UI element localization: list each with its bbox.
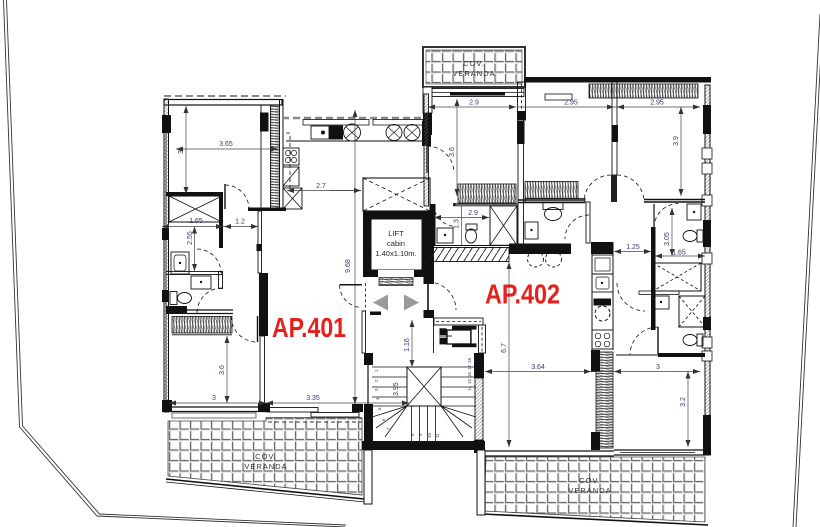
svg-text:3: 3 (212, 395, 216, 402)
svg-text:3.05: 3.05 (664, 232, 671, 246)
svg-text:AP.401: AP.401 (272, 312, 346, 343)
svg-text:LIFT: LIFT (388, 229, 404, 238)
svg-text:cabin: cabin (387, 239, 405, 248)
svg-text:10: 10 (427, 432, 432, 438)
svg-text:2.9: 2.9 (468, 210, 478, 217)
svg-text:3.6: 3.6 (449, 147, 456, 157)
svg-text:1.3: 1.3 (454, 219, 461, 229)
svg-text:COV.: COV. (579, 476, 601, 485)
svg-text:1.65: 1.65 (672, 250, 686, 257)
svg-text:AP.402: AP.402 (485, 279, 560, 310)
svg-text:3.6: 3.6 (219, 365, 226, 375)
svg-text:3: 3 (656, 364, 660, 371)
svg-text:9.68: 9.68 (345, 259, 352, 273)
svg-text:2.95: 2.95 (564, 100, 578, 107)
svg-text:16: 16 (467, 371, 472, 377)
svg-text:3.65: 3.65 (219, 141, 233, 148)
svg-text:2.95: 2.95 (650, 100, 664, 107)
svg-text:2.7: 2.7 (316, 183, 326, 190)
svg-text:2.9: 2.9 (469, 100, 479, 107)
svg-text:VERANDA: VERANDA (244, 462, 287, 471)
svg-text:6.7: 6.7 (501, 343, 508, 353)
svg-text:1.25: 1.25 (626, 244, 640, 251)
svg-text:VERANDA: VERANDA (452, 69, 495, 78)
svg-text:17: 17 (467, 364, 472, 370)
svg-text:14: 14 (467, 385, 472, 391)
svg-text:1.2: 1.2 (235, 219, 245, 226)
svg-text:3.35: 3.35 (306, 395, 320, 402)
svg-text:18: 18 (467, 357, 472, 363)
svg-text:11: 11 (435, 433, 440, 438)
svg-text:COV.: COV. (255, 452, 277, 461)
svg-text:COV.: COV. (463, 59, 485, 68)
svg-text:VERANDA: VERANDA (568, 486, 611, 495)
svg-text:1.40x1.10m.: 1.40x1.10m. (375, 249, 416, 258)
svg-text:3.2: 3.2 (680, 397, 687, 407)
svg-text:15: 15 (467, 378, 472, 384)
svg-text:3.64: 3.64 (531, 364, 545, 371)
svg-text:3.95: 3.95 (393, 382, 400, 396)
svg-text:3.9: 3.9 (673, 136, 680, 146)
svg-text:1.16: 1.16 (404, 338, 411, 352)
svg-text:1.65: 1.65 (189, 218, 203, 225)
